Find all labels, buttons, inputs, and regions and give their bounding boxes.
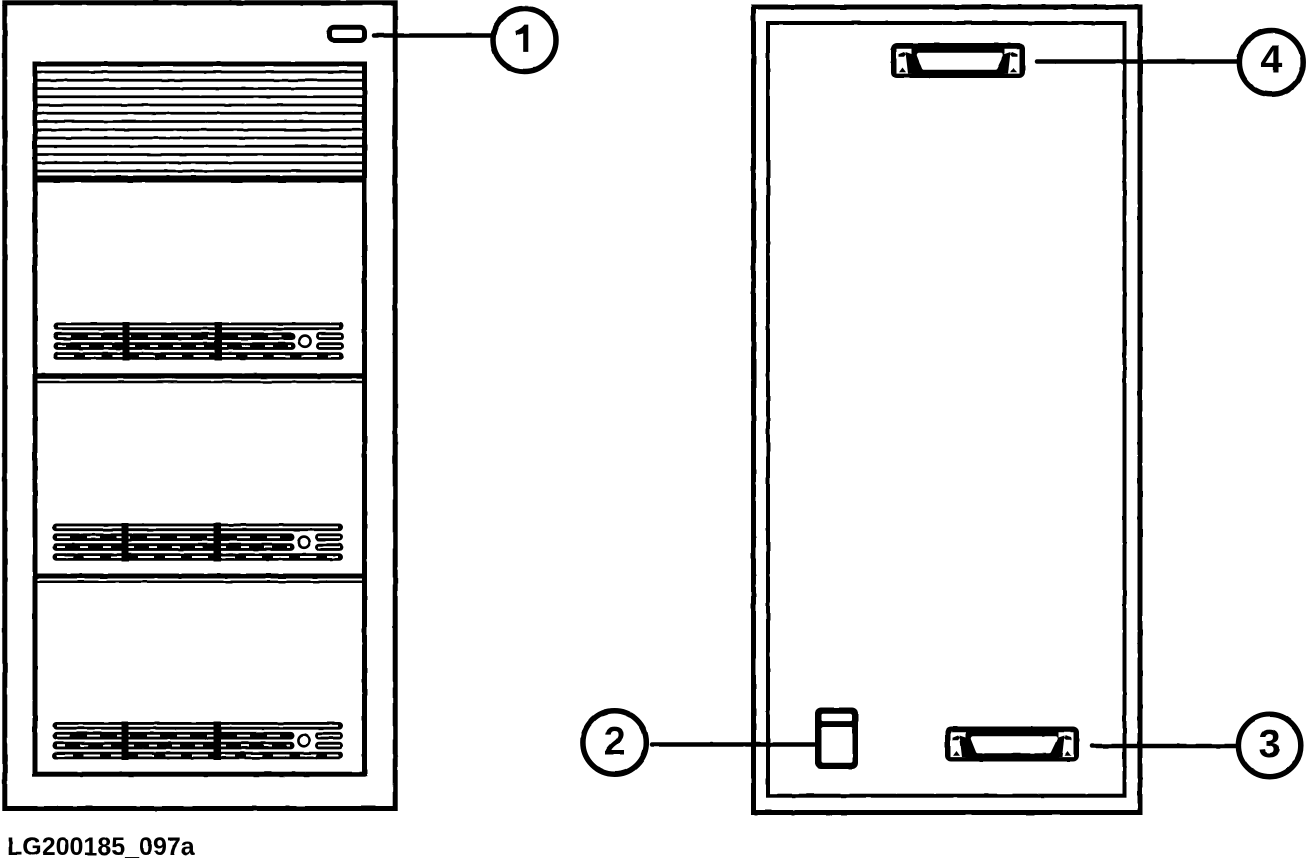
svg-text:LG200185_097a: LG200185_097a [7,833,196,861]
svg-text:4: 4 [1260,38,1282,82]
svg-text:3: 3 [1259,722,1281,766]
svg-text:2: 2 [604,720,626,764]
